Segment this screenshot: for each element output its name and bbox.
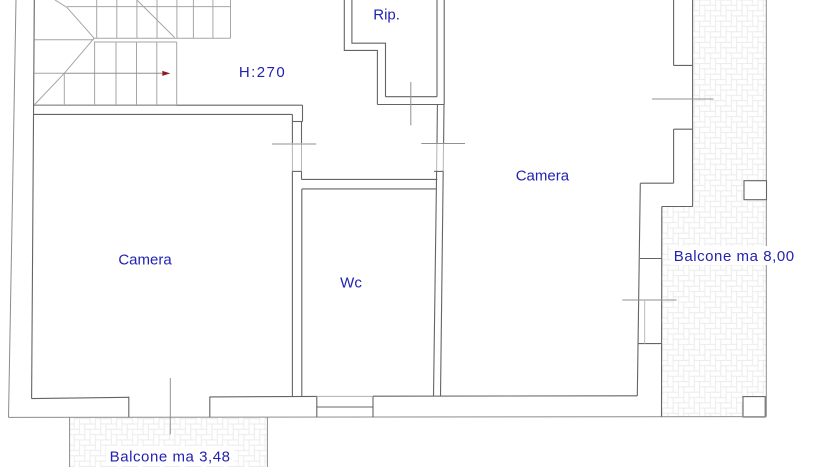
svg-text:Balcone ma 8,00: Balcone ma 8,00 — [674, 248, 795, 265]
svg-text:Camera: Camera — [118, 252, 172, 269]
svg-text:H:270: H:270 — [239, 64, 286, 81]
svg-text:Rip.: Rip. — [373, 6, 400, 23]
svg-text:Wc: Wc — [340, 275, 362, 292]
svg-text:Camera: Camera — [516, 167, 570, 184]
svg-text:Balcone ma 3,48: Balcone ma 3,48 — [110, 449, 231, 466]
